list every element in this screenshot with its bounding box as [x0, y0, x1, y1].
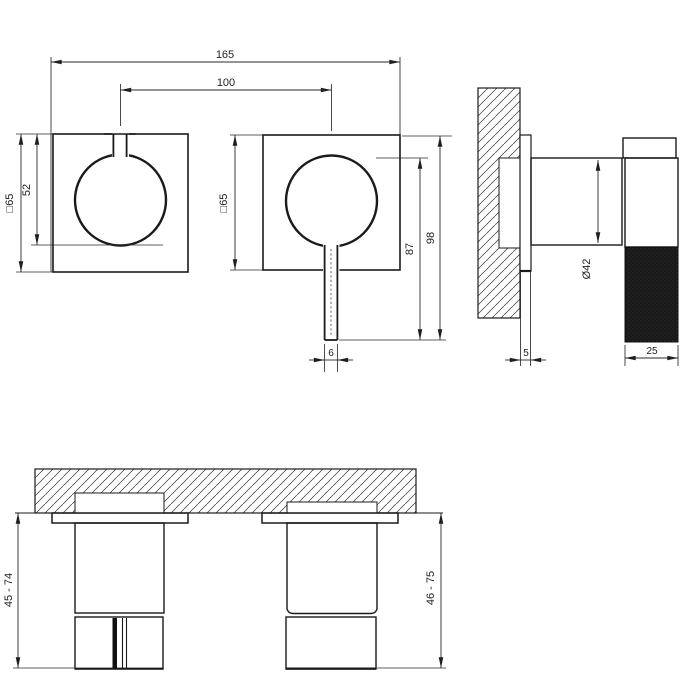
handle-right: [286, 617, 376, 669]
dim-dia42-label: Ø42: [581, 259, 593, 280]
dim-5-label: 5: [523, 348, 529, 359]
dim-87-label: 87: [404, 243, 416, 255]
plate-left-bottomview: [52, 513, 188, 523]
dim-6-label: 6: [328, 348, 334, 359]
recess-right: [287, 502, 377, 513]
lever-end-on: [113, 618, 118, 668]
knob-body-left: [75, 523, 164, 613]
drawing-sheet: 165 100 □65 52 □65 87 98 6: [0, 0, 700, 700]
dim-sq65-right-label: □65: [218, 194, 230, 213]
wall-recess-valve-body: [499, 158, 521, 248]
side-view: Ø42 5 25: [478, 88, 678, 366]
handle-top-step: [623, 138, 676, 158]
handle-knurled-grip: [625, 247, 678, 342]
right-knob: [286, 156, 377, 247]
handle-left: [75, 617, 163, 669]
bottom-view: 45 - 74 46 - 75: [3, 469, 446, 669]
technical-drawing: 165 100 □65 52 □65 87 98 6: [0, 0, 700, 700]
dim-100-label: 100: [217, 77, 235, 89]
front-view: 165 100 □65 52 □65 87 98 6: [4, 49, 452, 372]
dim-98-label: 98: [425, 232, 437, 244]
dim-sq65-left-label: □65: [4, 194, 16, 213]
dim-45-74-label: 45 - 74: [3, 573, 15, 607]
dim-165-label: 165: [216, 49, 234, 61]
dim-25-label: 25: [646, 346, 658, 357]
plate-right-bottomview: [262, 513, 398, 523]
recess-left: [75, 493, 164, 513]
dim-52-label: 52: [21, 184, 33, 196]
valve-cylinder-side: [531, 158, 622, 245]
left-knob: [75, 155, 166, 246]
handle-body-side: [625, 158, 678, 247]
dim-46-75-label: 46 - 75: [425, 571, 437, 605]
trim-plate-side: [520, 135, 531, 271]
knob-body-right: [287, 523, 377, 614]
